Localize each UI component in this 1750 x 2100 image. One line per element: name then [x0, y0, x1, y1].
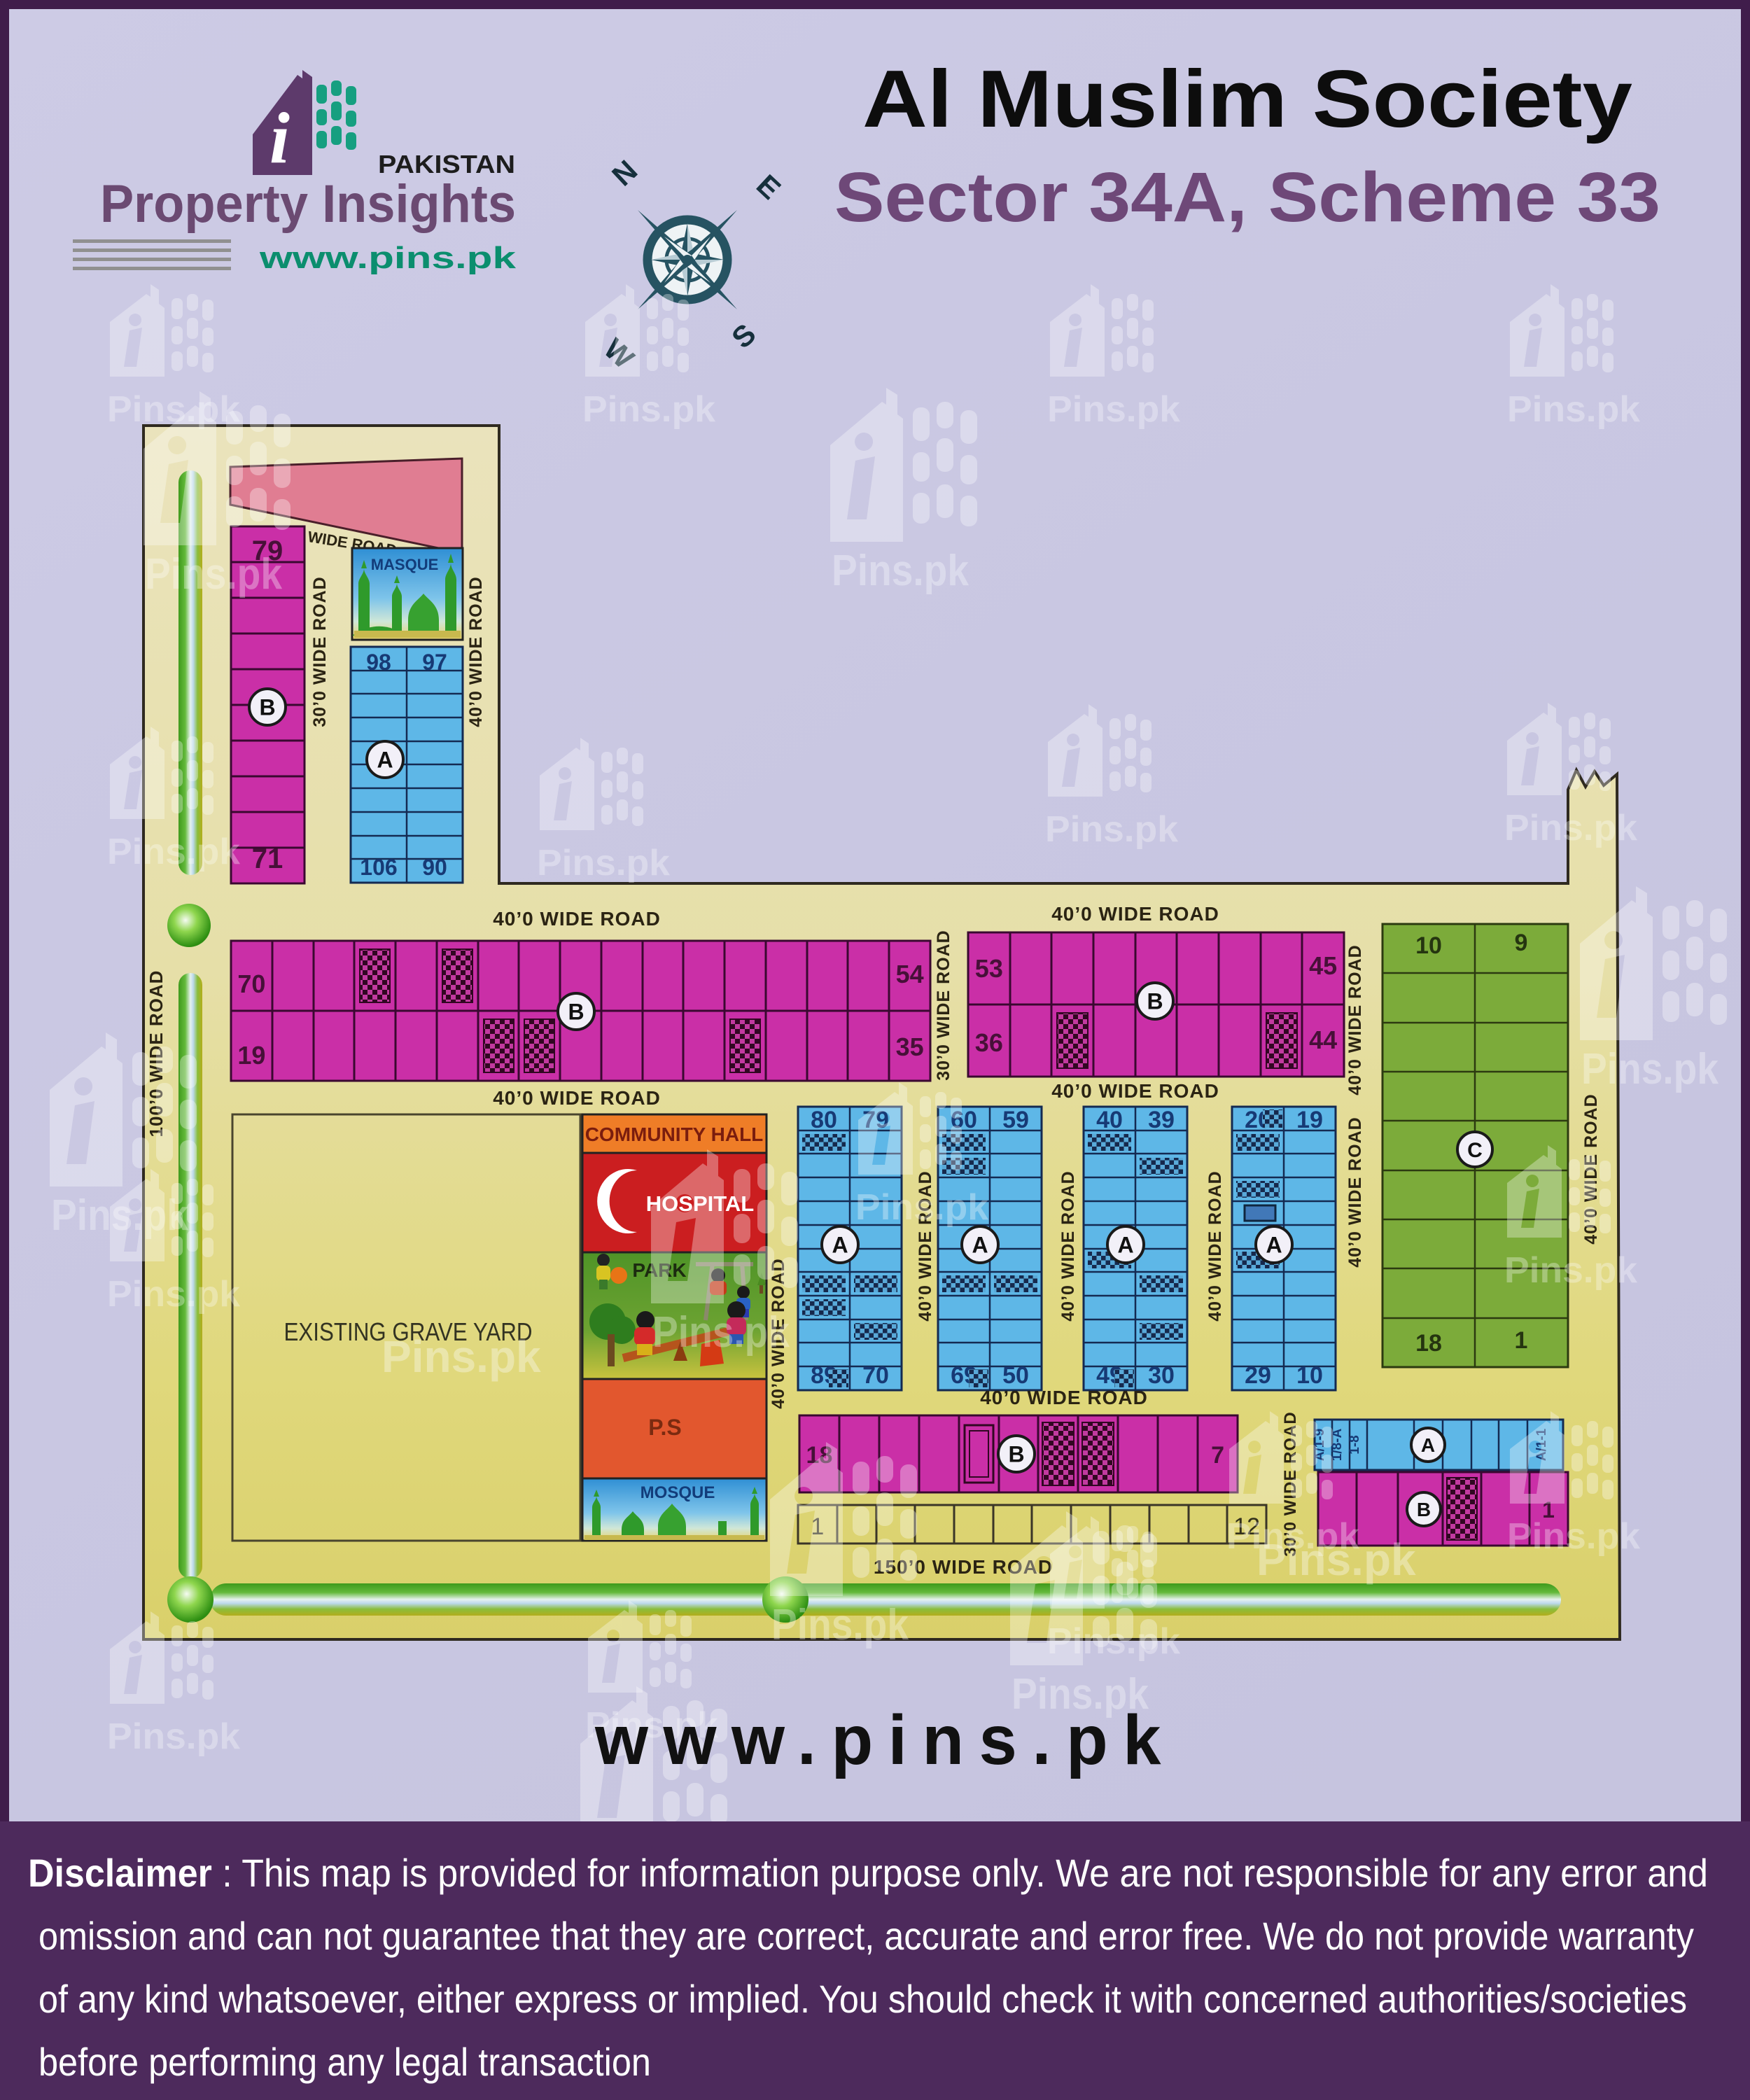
- svg-text:70: 70: [862, 1362, 889, 1389]
- svg-text:40’0 WIDE ROAD: 40’0 WIDE ROAD: [466, 576, 486, 727]
- svg-text:MASQUE: MASQUE: [371, 556, 439, 573]
- svg-text:B: B: [1417, 1499, 1431, 1520]
- svg-text:19: 19: [237, 1041, 265, 1070]
- svg-text:P.S: P.S: [648, 1415, 681, 1440]
- svg-text:39: 39: [1148, 1107, 1175, 1133]
- svg-text:35: 35: [896, 1032, 924, 1061]
- svg-text:Al Muslim Society: Al Muslim Society: [862, 53, 1632, 144]
- svg-text:106: 106: [360, 855, 397, 880]
- svg-text:36: 36: [975, 1028, 1003, 1057]
- svg-text:www.pins.pk: www.pins.pk: [594, 1701, 1176, 1779]
- svg-text:C: C: [1467, 1139, 1483, 1162]
- svg-text:30’0 WIDE ROAD: 30’0 WIDE ROAD: [310, 576, 330, 727]
- svg-text:before performing any legal tr: before performing any legal transaction: [38, 2040, 651, 2084]
- svg-text:Disclaimer : This map is provi: Disclaimer : This map is provided for in…: [28, 1851, 1708, 1895]
- svg-text:9: 9: [1515, 930, 1528, 956]
- svg-text:54: 54: [896, 960, 924, 988]
- svg-text:40’0 WIDE ROAD: 40’0 WIDE ROAD: [1051, 903, 1219, 925]
- svg-text:7: 7: [1211, 1442, 1224, 1469]
- svg-text:A: A: [1117, 1233, 1133, 1258]
- svg-text:Pins.pk: Pins.pk: [381, 1331, 541, 1382]
- svg-text:i: i: [269, 98, 290, 178]
- svg-text:40’0 WIDE ROAD: 40’0 WIDE ROAD: [1345, 944, 1365, 1095]
- svg-text:70: 70: [237, 969, 265, 998]
- svg-text:40: 40: [1096, 1107, 1123, 1133]
- svg-text:40’0 WIDE ROAD: 40’0 WIDE ROAD: [1051, 1080, 1219, 1102]
- svg-text:80: 80: [811, 1107, 837, 1133]
- svg-text:40’0 WIDE ROAD: 40’0 WIDE ROAD: [1345, 1116, 1365, 1267]
- svg-text:of any kind whatsoever, either: of any kind whatsoever, either express o…: [38, 1977, 1687, 2021]
- svg-text:98: 98: [366, 650, 391, 675]
- svg-text:59: 59: [1002, 1107, 1029, 1133]
- svg-text:1: 1: [1515, 1327, 1528, 1354]
- svg-text:omission and can not guarantee: omission and can not guarantee that they…: [38, 1914, 1694, 1958]
- svg-text:30: 30: [1148, 1362, 1175, 1389]
- svg-text:A: A: [1421, 1434, 1435, 1456]
- svg-text:19: 19: [1296, 1107, 1323, 1133]
- svg-text:40’0 WIDE ROAD: 40’0 WIDE ROAD: [980, 1387, 1148, 1408]
- svg-text:MOSQUE: MOSQUE: [640, 1483, 715, 1502]
- svg-text:44: 44: [1309, 1025, 1337, 1054]
- svg-text:B: B: [568, 1000, 584, 1025]
- svg-text:50: 50: [1002, 1362, 1029, 1389]
- svg-text:40’0 WIDE ROAD: 40’0 WIDE ROAD: [1058, 1170, 1078, 1321]
- svg-text:29: 29: [1245, 1362, 1271, 1389]
- svg-text:1-8: 1-8: [1347, 1435, 1362, 1454]
- svg-text:B: B: [1147, 989, 1163, 1014]
- svg-text:Property Insights: Property Insights: [100, 174, 516, 234]
- svg-text:COMMUNITY HALL: COMMUNITY HALL: [585, 1123, 764, 1145]
- svg-text:10: 10: [1415, 932, 1442, 959]
- svg-text:90: 90: [422, 855, 447, 880]
- svg-text:71: 71: [252, 843, 283, 874]
- svg-text:40’0 WIDE ROAD: 40’0 WIDE ROAD: [493, 1087, 661, 1109]
- svg-text:45: 45: [1309, 951, 1337, 980]
- svg-text:B: B: [1008, 1442, 1024, 1467]
- svg-text:A: A: [972, 1233, 988, 1258]
- svg-text:Sector 34A, Scheme 33: Sector 34A, Scheme 33: [834, 158, 1660, 237]
- svg-text:53: 53: [975, 954, 1003, 983]
- svg-text:A: A: [832, 1233, 848, 1258]
- svg-text:B: B: [259, 695, 275, 720]
- svg-text:Pins.pk: Pins.pk: [1256, 1534, 1416, 1585]
- svg-text:www.pins.pk: www.pins.pk: [259, 241, 517, 275]
- svg-text:18: 18: [1415, 1330, 1442, 1357]
- svg-text:40’0 WIDE ROAD: 40’0 WIDE ROAD: [1205, 1170, 1225, 1321]
- svg-text:A: A: [1266, 1233, 1282, 1258]
- svg-text:40’0 WIDE ROAD: 40’0 WIDE ROAD: [493, 908, 661, 930]
- svg-text:A: A: [377, 748, 393, 773]
- svg-text:97: 97: [422, 650, 447, 675]
- svg-text:10: 10: [1296, 1362, 1323, 1389]
- svg-text:30’0 WIDE ROAD: 30’0 WIDE ROAD: [934, 930, 953, 1080]
